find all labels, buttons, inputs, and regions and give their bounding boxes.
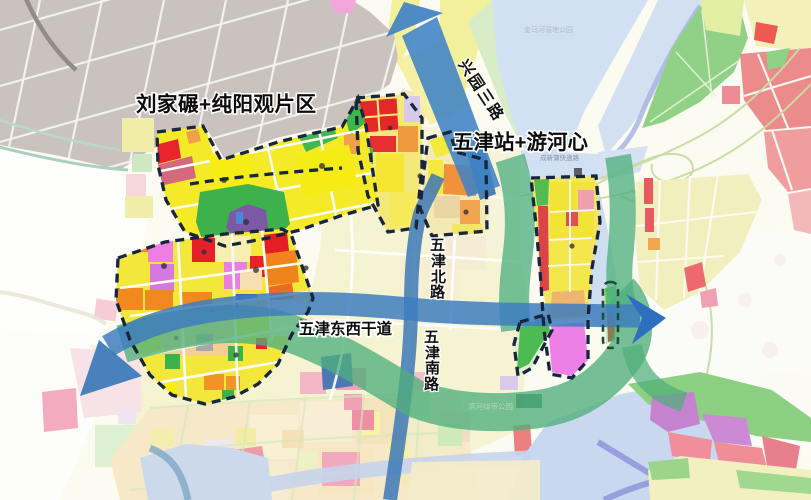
svg-text:南: 南	[425, 359, 440, 377]
svg-text:五津东西干道: 五津东西干道	[299, 319, 393, 338]
svg-text:路: 路	[430, 283, 446, 301]
svg-text:刘家碾+纯阳观片区: 刘家碾+纯阳观片区	[136, 92, 316, 116]
svg-text:成新蒲快速路: 成新蒲快速路	[540, 153, 580, 162]
svg-text:金马河湿地公园: 金马河湿地公园	[524, 25, 573, 34]
svg-text:五津站+游河心: 五津站+游河心	[453, 130, 588, 154]
svg-text:五: 五	[430, 237, 445, 254]
svg-text:路: 路	[424, 375, 440, 393]
svg-text:津: 津	[431, 252, 446, 270]
svg-text:滨河绿带公园: 滨河绿带公园	[468, 401, 513, 411]
svg-text:五: 五	[424, 329, 439, 346]
